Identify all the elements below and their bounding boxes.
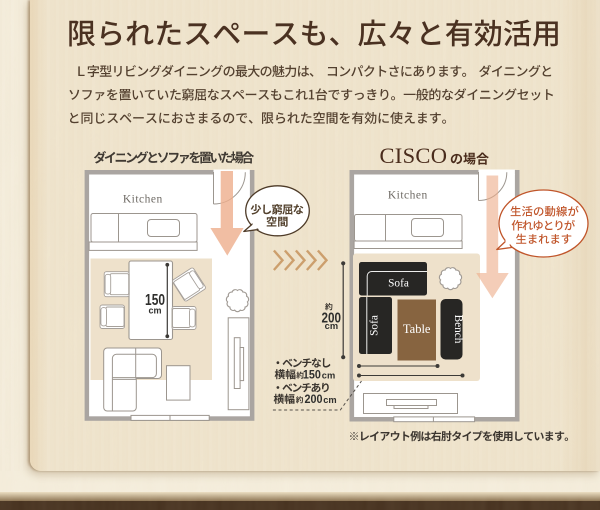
svg-text:cm: cm [322,370,335,380]
svg-text:Sofa: Sofa [369,315,381,336]
svg-text:cm: cm [323,395,336,405]
svg-text:cm: cm [325,321,338,331]
svg-text:Table: Table [403,322,431,336]
svg-text:cm: cm [148,306,161,316]
svg-text:150: 150 [303,368,321,382]
svg-text:200: 200 [305,392,323,406]
svg-text:Bench: Bench [452,315,464,344]
svg-text:Sofa: Sofa [388,278,409,290]
svg-text:Kitchen: Kitchen [388,190,428,202]
svg-text:Kitchen: Kitchen [123,194,163,206]
svg-text:CISCO: CISCO [380,143,448,168]
